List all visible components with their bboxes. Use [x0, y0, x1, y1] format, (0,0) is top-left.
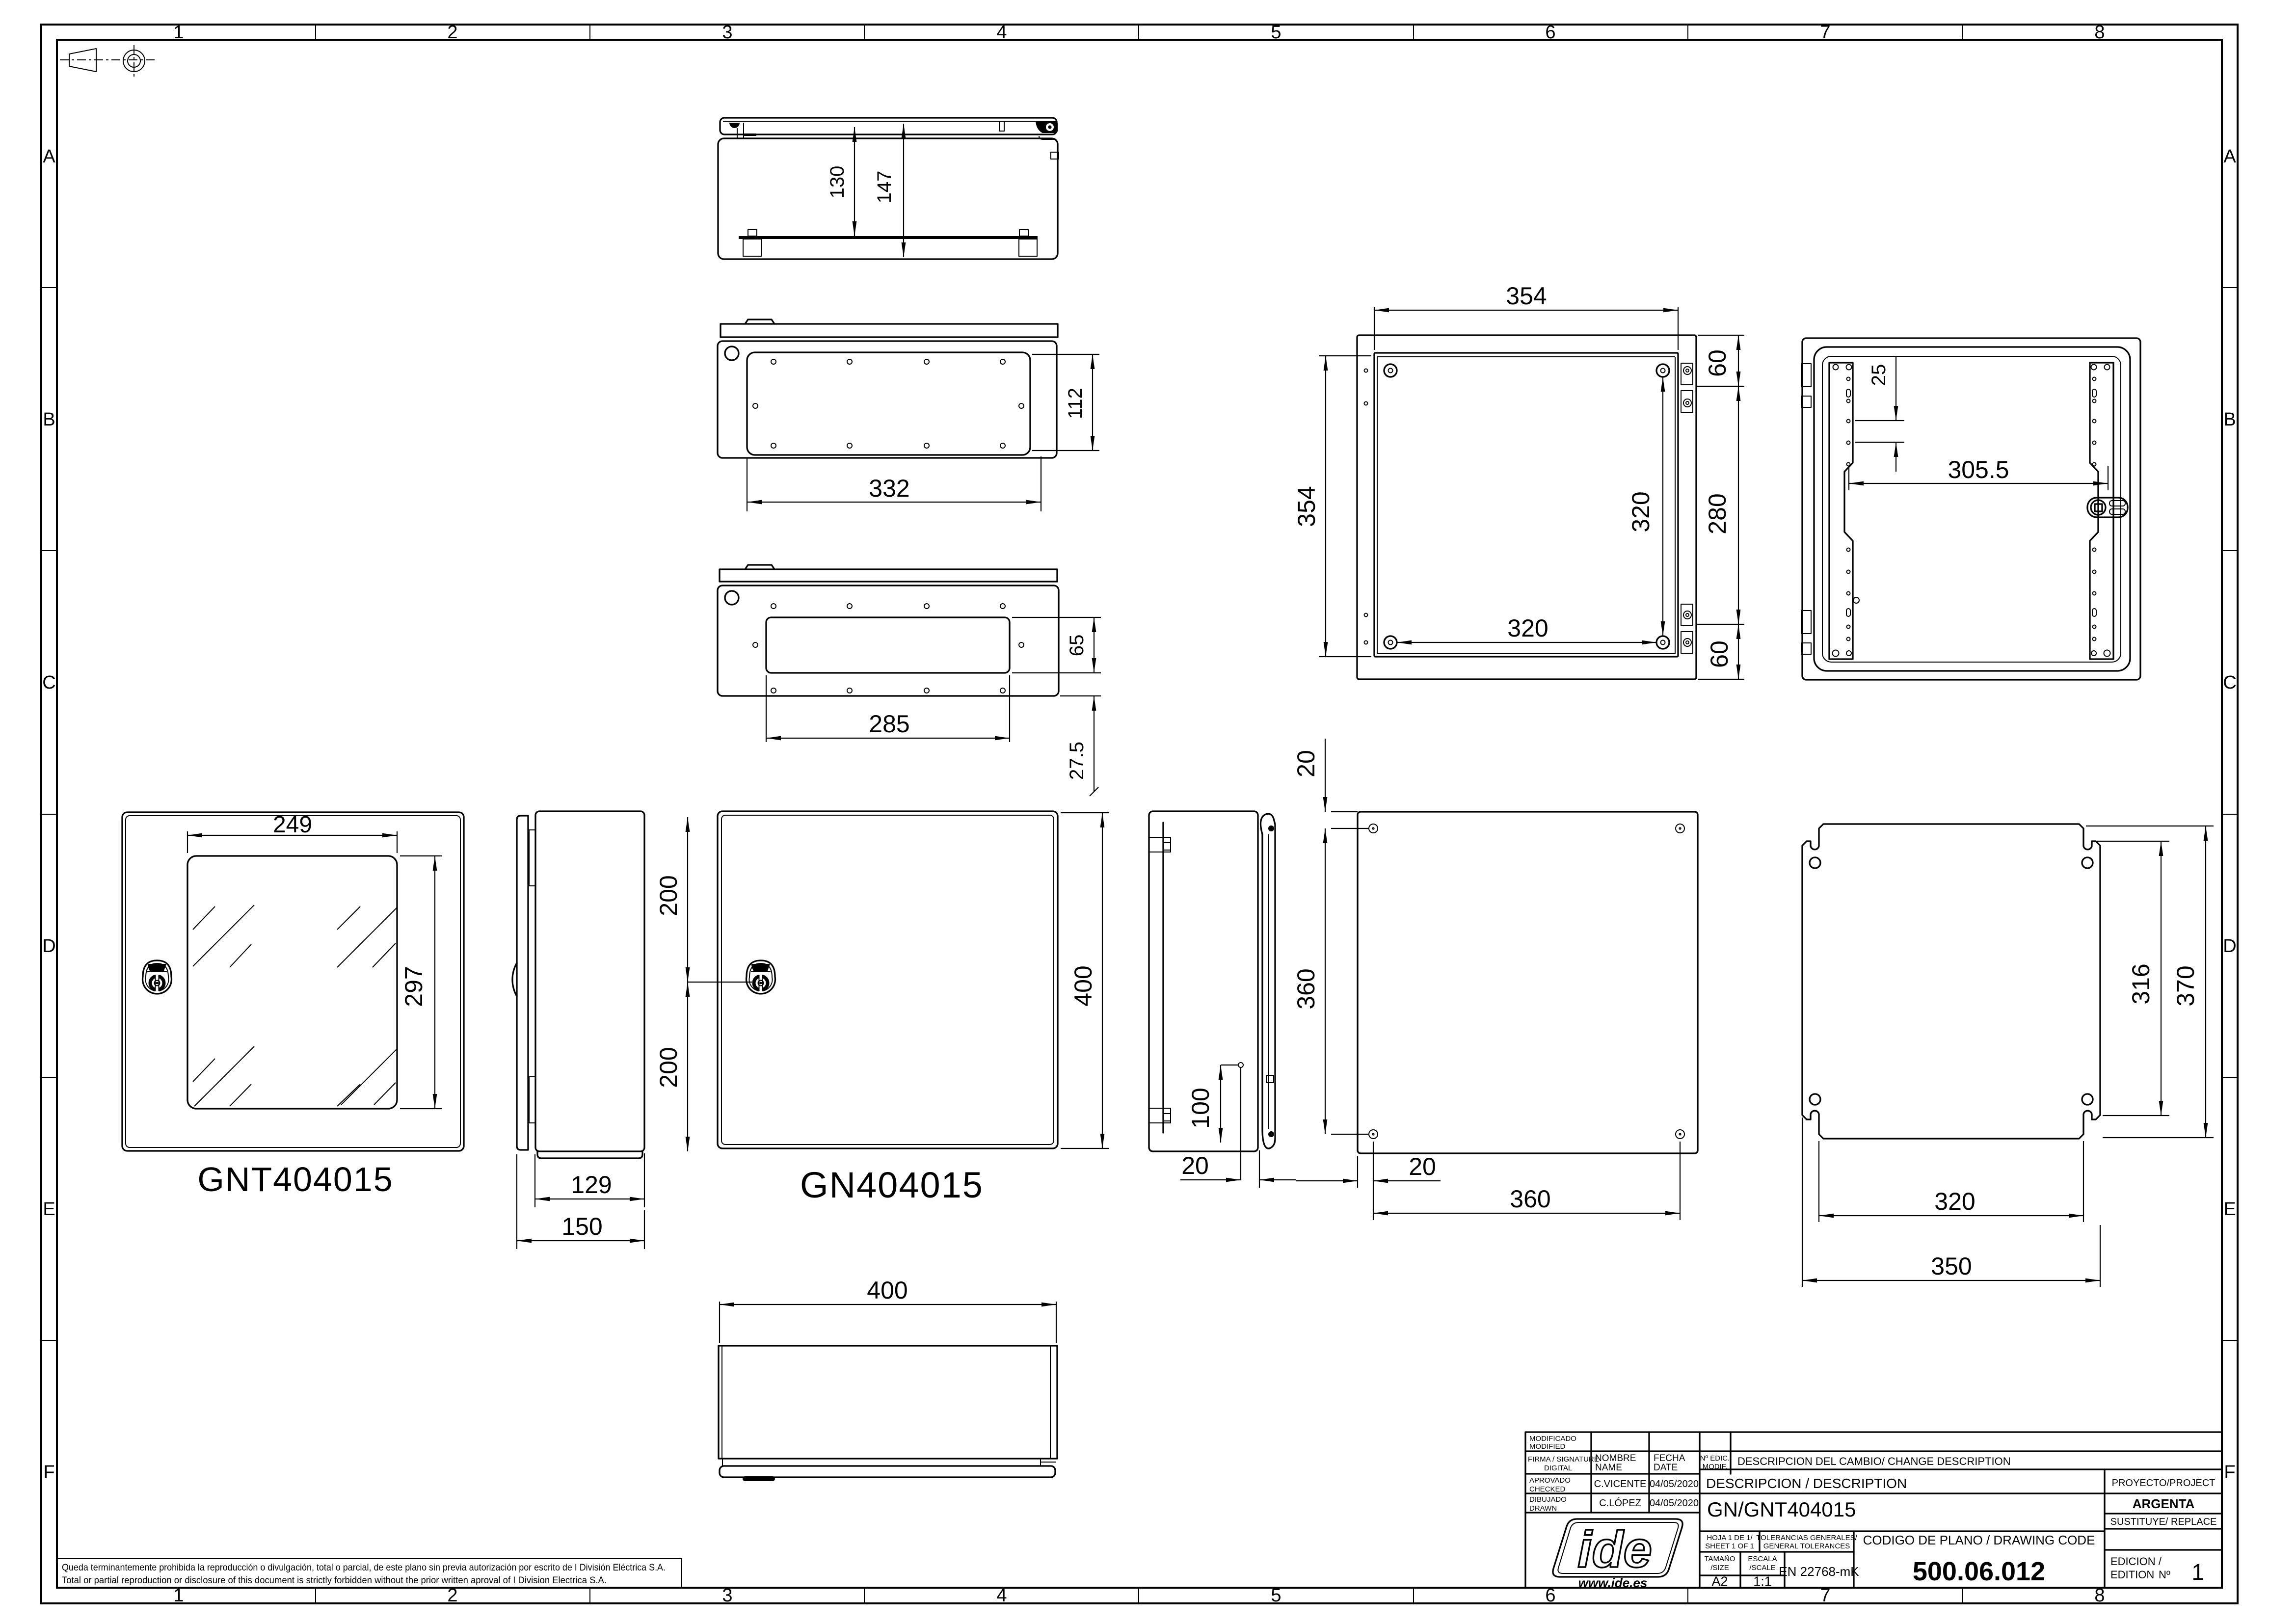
svg-text:Queda terminantemente prohibid: Queda terminantemente prohibida la repro…: [62, 1563, 666, 1573]
svg-text:2: 2: [447, 1585, 457, 1606]
svg-text:E: E: [2223, 1199, 2236, 1220]
svg-text:200: 200: [655, 875, 682, 916]
svg-text:6: 6: [1545, 22, 1555, 43]
svg-text:GNT404015: GNT404015: [197, 1160, 393, 1198]
svg-text:60: 60: [1706, 640, 1733, 668]
svg-text:150: 150: [561, 1213, 602, 1240]
svg-text:1: 1: [173, 1585, 184, 1606]
svg-text:C: C: [2223, 672, 2236, 693]
svg-text:B: B: [2223, 409, 2236, 430]
svg-text:DESCRIPCION DEL CAMBIO/ CHANG: DESCRIPCION DEL CAMBIO/ CHANGE DESCRIPTI…: [1737, 1455, 2011, 1467]
svg-text:320: 320: [1934, 1188, 1975, 1215]
svg-text:4: 4: [996, 1585, 1007, 1606]
svg-text:5: 5: [1271, 22, 1281, 43]
svg-text:SUSTITUYE/ REPLACE: SUSTITUYE/ REPLACE: [2110, 1517, 2217, 1527]
svg-text:350: 350: [1931, 1252, 1972, 1280]
svg-text:354: 354: [1506, 282, 1547, 310]
svg-text:370: 370: [2172, 965, 2199, 1006]
svg-text:400: 400: [867, 1277, 908, 1304]
svg-text:130: 130: [827, 166, 848, 199]
svg-text:C: C: [42, 672, 55, 693]
svg-text:285: 285: [869, 710, 909, 738]
svg-text:100: 100: [1187, 1088, 1214, 1128]
svg-text:TOLERANCIAS GENERALES/: TOLERANCIAS GENERALES/: [1756, 1534, 1857, 1542]
svg-text:04/05/2020: 04/05/2020: [1650, 1498, 1699, 1509]
svg-text:APROVADO: APROVADO: [1529, 1476, 1571, 1485]
svg-text:DESCRIPCION / DESCRIPTION: DESCRIPCION / DESCRIPTION: [1706, 1476, 1907, 1491]
svg-text:112: 112: [1065, 388, 1086, 419]
svg-text:D: D: [2223, 936, 2236, 957]
svg-text:A2: A2: [1711, 1574, 1728, 1589]
svg-text:F: F: [2224, 1462, 2235, 1483]
svg-text:EDITION: EDITION: [2110, 1569, 2154, 1581]
svg-text:8: 8: [2094, 22, 2105, 43]
svg-text:3: 3: [722, 22, 732, 43]
svg-text:400: 400: [1069, 965, 1097, 1006]
svg-text:MODIFIED: MODIFIED: [1529, 1442, 1565, 1451]
svg-text:DRAWN: DRAWN: [1529, 1504, 1557, 1513]
svg-text:NAME: NAME: [1595, 1463, 1622, 1473]
svg-text:SHEET 1 OF 1: SHEET 1 OF 1: [1705, 1542, 1754, 1550]
svg-text:2: 2: [447, 22, 457, 43]
svg-text:320: 320: [1627, 491, 1655, 532]
svg-text:500.06.012: 500.06.012: [1913, 1557, 2045, 1586]
svg-text:305.5: 305.5: [1948, 456, 2009, 483]
svg-text:B: B: [43, 409, 55, 430]
svg-text:GN/GNT404015: GN/GNT404015: [1707, 1498, 1856, 1521]
svg-text:FIRMA / SIGNATURE: FIRMA / SIGNATURE: [1528, 1455, 1599, 1464]
svg-text:Nº EDIC.: Nº EDIC.: [1700, 1454, 1730, 1463]
svg-text:MODIF.: MODIF.: [1703, 1463, 1728, 1471]
svg-text:/SIZE: /SIZE: [1710, 1564, 1729, 1572]
svg-text:E: E: [43, 1199, 55, 1220]
svg-text:PROYECTO/PROJECT: PROYECTO/PROJECT: [2112, 1478, 2216, 1489]
svg-text:DIBUJADO: DIBUJADO: [1529, 1495, 1567, 1504]
svg-text:360: 360: [1292, 968, 1320, 1009]
svg-text:www.ide.es: www.ide.es: [1578, 1575, 1648, 1590]
svg-text:147: 147: [874, 171, 895, 204]
svg-text:Total or partial reproduction: Total or partial reproduction or disclos…: [62, 1575, 607, 1586]
svg-text:04/05/2020: 04/05/2020: [1650, 1479, 1699, 1490]
svg-text:FECHA: FECHA: [1654, 1453, 1685, 1464]
svg-text:332: 332: [869, 475, 909, 502]
svg-text:ide: ide: [1577, 1521, 1652, 1578]
svg-text:200: 200: [655, 1047, 682, 1088]
svg-text:DATE: DATE: [1654, 1463, 1678, 1473]
svg-text:F: F: [43, 1462, 54, 1483]
svg-text:4: 4: [996, 22, 1007, 43]
svg-text:3: 3: [722, 1585, 732, 1606]
svg-text:27.5: 27.5: [1066, 742, 1088, 780]
svg-text:320: 320: [1507, 614, 1548, 642]
svg-text:MODIFICADO: MODIFICADO: [1529, 1435, 1576, 1443]
svg-text:249: 249: [273, 812, 312, 838]
svg-text:60: 60: [1704, 349, 1731, 377]
svg-text:280: 280: [1704, 493, 1731, 534]
svg-text:CHECKED: CHECKED: [1529, 1485, 1566, 1493]
svg-text:TAMAÑO: TAMAÑO: [1704, 1555, 1735, 1563]
svg-text:EN 22768-mK: EN 22768-mK: [1779, 1564, 1859, 1579]
svg-text:EDICION /: EDICION /: [2110, 1555, 2162, 1568]
svg-text:5: 5: [1271, 1585, 1281, 1606]
svg-text:D: D: [42, 936, 55, 957]
svg-text:C.VICENTE: C.VICENTE: [1594, 1479, 1647, 1490]
svg-text:A: A: [2223, 146, 2236, 167]
svg-text:297: 297: [400, 966, 427, 1007]
svg-text:Nº: Nº: [2159, 1569, 2170, 1581]
svg-text:DIGITAL: DIGITAL: [1544, 1464, 1572, 1472]
svg-text:CODIGO DE PLANO / DRAWING CODE: CODIGO DE PLANO / DRAWING CODE: [1863, 1533, 2095, 1547]
svg-text:20: 20: [1409, 1153, 1436, 1180]
svg-text:ARGENTA: ARGENTA: [2133, 1496, 2195, 1511]
svg-text:1: 1: [173, 22, 184, 43]
svg-text:A: A: [43, 146, 55, 167]
svg-text:316: 316: [2127, 963, 2155, 1004]
svg-text:25: 25: [1868, 364, 1890, 386]
svg-text:C.LÓPEZ: C.LÓPEZ: [1599, 1497, 1641, 1509]
svg-text:20: 20: [1292, 750, 1320, 777]
svg-text:65: 65: [1066, 635, 1088, 657]
svg-text:GN404015: GN404015: [800, 1165, 984, 1205]
svg-text:7: 7: [1820, 22, 1830, 43]
svg-text:HOJA 1 DE 1/: HOJA 1 DE 1/: [1707, 1534, 1753, 1542]
svg-text:129: 129: [571, 1171, 612, 1198]
svg-text:GENERAL TOLERANCES: GENERAL TOLERANCES: [1763, 1542, 1850, 1550]
svg-text:354: 354: [1293, 486, 1320, 527]
svg-text:1: 1: [2191, 1559, 2204, 1585]
svg-text:1:1: 1:1: [1753, 1574, 1772, 1589]
svg-text:360: 360: [1510, 1185, 1550, 1213]
svg-text:ESCALA: ESCALA: [1748, 1555, 1777, 1563]
svg-text:NOMBRE: NOMBRE: [1595, 1453, 1636, 1464]
svg-text:20: 20: [1181, 1152, 1209, 1179]
svg-text:/SCALE: /SCALE: [1749, 1564, 1775, 1572]
